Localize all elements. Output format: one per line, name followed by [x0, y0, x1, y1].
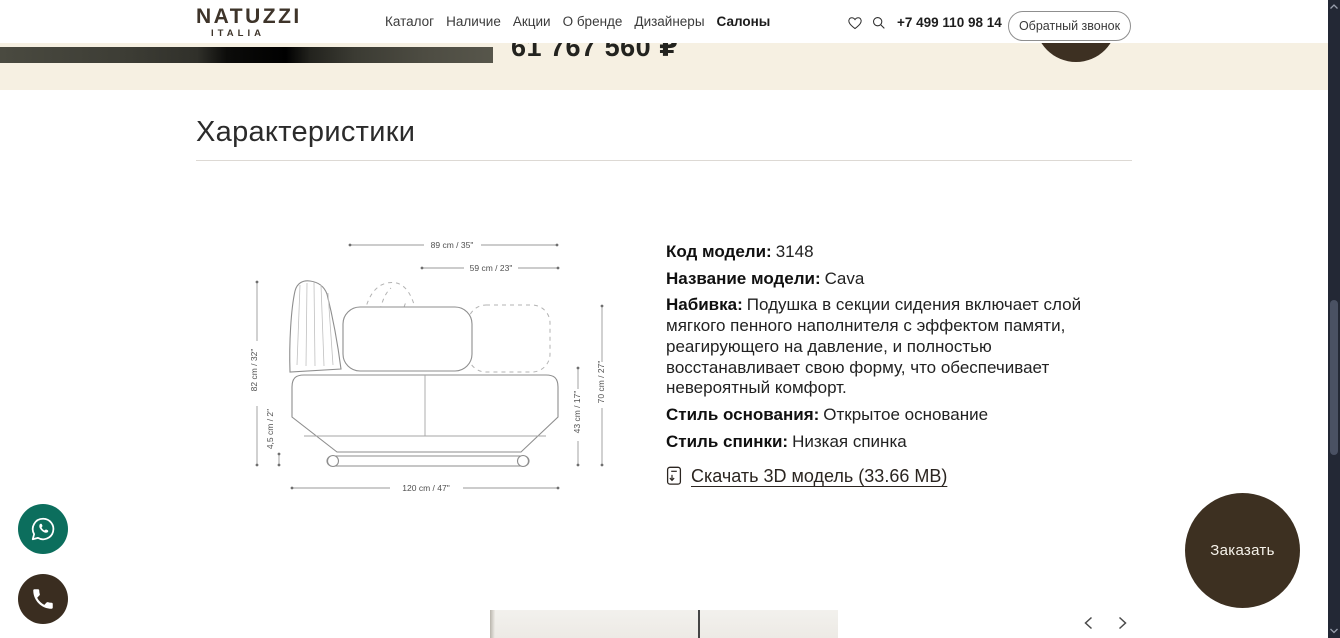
spec-model-name: Название модели:Cava — [666, 269, 1084, 290]
chevron-left-icon[interactable] — [1080, 614, 1098, 632]
main-nav: Каталог Наличие Акции О бренде Дизайнеры… — [385, 0, 770, 43]
product-photo-strip — [0, 47, 493, 63]
chevron-right-icon[interactable] — [1113, 614, 1131, 632]
nav-promotions[interactable]: Акции — [513, 14, 551, 29]
logo-line1: NATUZZI — [196, 6, 280, 28]
section-title: Характеристики — [196, 116, 415, 149]
scrollbar-thumb[interactable] — [1330, 300, 1338, 455]
nav-salons[interactable]: Салоны — [717, 14, 771, 29]
dim-clearance: 4,5 cm / 2" — [265, 409, 275, 449]
nav-about-brand[interactable]: О бренде — [563, 14, 623, 29]
spec-padding: Набивка:Подушка в секции сидения включае… — [666, 295, 1084, 399]
divider — [196, 160, 1132, 161]
scroll-up-icon[interactable] — [1329, 3, 1339, 11]
site-header: NATUZZI ITALIA Каталог Наличие Акции О б… — [0, 0, 1328, 43]
dim-total-height: 82 cm / 32" — [249, 349, 259, 392]
search-icon[interactable] — [871, 15, 887, 31]
heart-icon[interactable] — [847, 15, 863, 31]
call-button[interactable] — [18, 574, 68, 624]
header-phone-number[interactable]: +7 499 110 98 14 — [897, 15, 1002, 30]
scroll-down-icon[interactable] — [1329, 627, 1339, 635]
nav-availability[interactable]: Наличие — [446, 14, 501, 29]
phone-icon — [30, 586, 56, 612]
dim-total-depth: 120 cm / 47" — [402, 483, 449, 493]
spec-list: Код модели:3148 Название модели:Cava Наб… — [666, 242, 1084, 458]
whatsapp-icon — [29, 515, 57, 543]
brand-logo[interactable]: NATUZZI ITALIA — [196, 6, 280, 39]
dimensions-drawing: 89 cm / 35" 59 cm / 23" 82 cm / 32" 4,5 … — [240, 225, 630, 515]
callback-button[interactable]: Обратный звонок — [1008, 11, 1131, 41]
dim-seat-height: 43 cm / 17" — [572, 391, 582, 434]
dim-arm-height: 70 cm / 27" — [596, 361, 606, 404]
dim-total-width: 89 cm / 35" — [431, 240, 474, 250]
spec-model-code: Код модели:3148 — [666, 242, 1084, 263]
spec-back-style: Стиль спинки:Низкая спинка — [666, 432, 1084, 453]
dim-back-width: 59 cm / 23" — [470, 263, 513, 273]
nav-designers[interactable]: Дизайнеры — [634, 14, 704, 29]
logo-line2: ITALIA — [196, 28, 280, 39]
spec-base-style: Стиль основания:Открытое основание — [666, 405, 1084, 426]
whatsapp-button[interactable] — [18, 504, 68, 554]
download-doc-icon — [666, 466, 682, 487]
download-3d-link[interactable]: Скачать 3D модель (33.66 MB) — [691, 466, 947, 487]
order-button[interactable]: Заказать — [1185, 493, 1300, 608]
scrollbar-track — [1328, 0, 1340, 638]
download-3d-row: Скачать 3D модель (33.66 MB) — [666, 466, 947, 487]
scrolled-hero-band: 61 767 560 ₽ — [0, 43, 1328, 90]
nav-catalog[interactable]: Каталог — [385, 14, 434, 29]
product-photo-partial — [490, 610, 838, 638]
page: 61 767 560 ₽ NATUZZI ITALIA Каталог Нали… — [0, 0, 1340, 638]
